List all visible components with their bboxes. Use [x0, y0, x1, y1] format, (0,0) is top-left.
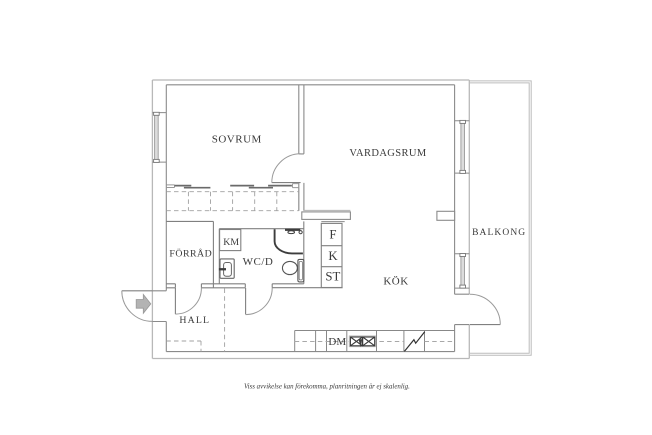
- svg-text:F: F: [329, 227, 336, 241]
- svg-text:DM: DM: [328, 336, 346, 348]
- svg-text:FÖRRÅD: FÖRRÅD: [169, 248, 212, 260]
- svg-text:WC/D: WC/D: [243, 256, 274, 268]
- svg-text:SOVRUM: SOVRUM: [212, 133, 262, 145]
- svg-text:KM: KM: [223, 237, 239, 248]
- svg-text:KÖK: KÖK: [383, 276, 408, 288]
- svg-text:K: K: [328, 249, 338, 263]
- svg-text:BALKONG: BALKONG: [472, 228, 526, 238]
- svg-text:Viss avvikelse kan förekomma,: Viss avvikelse kan förekomma, planritnin…: [244, 383, 410, 390]
- svg-text:HALL: HALL: [179, 315, 210, 326]
- svg-text:ST: ST: [325, 270, 340, 284]
- svg-text:VARDAGSRUM: VARDAGSRUM: [349, 148, 427, 159]
